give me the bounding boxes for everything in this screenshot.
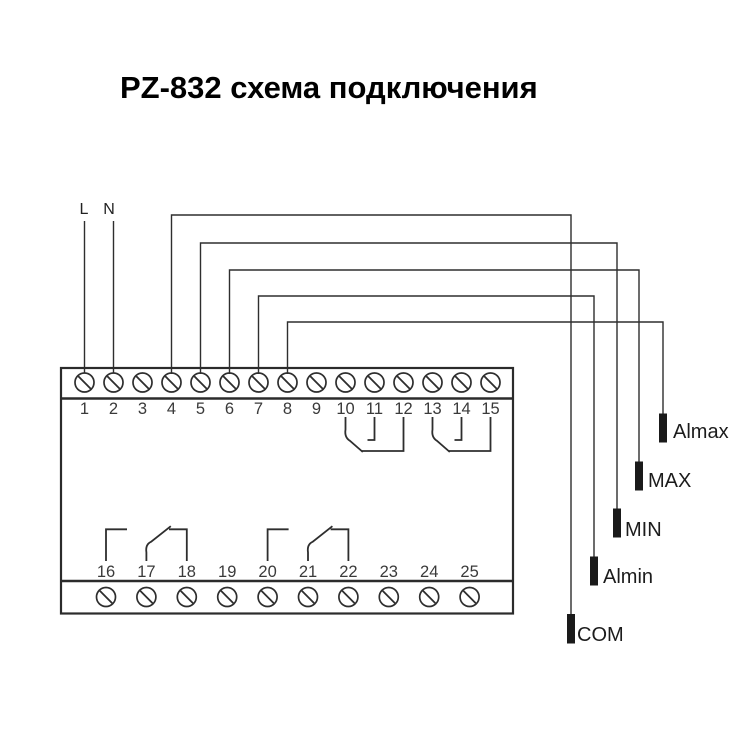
terminal-number: 25 — [460, 563, 478, 581]
terminal-number: 3 — [138, 400, 147, 418]
electrode-label: Almax — [673, 421, 729, 443]
bottom-terminal-numbers: 16 17 18 19 20 21 22 23 24 25 — [97, 563, 479, 581]
screw-icon — [336, 373, 355, 392]
relay-contacts — [106, 417, 491, 561]
contact-blade — [432, 417, 450, 452]
terminal-number: 14 — [452, 400, 470, 418]
screw-icon — [452, 373, 471, 392]
contact-fixed-arm — [362, 417, 404, 451]
screw-icon — [365, 373, 384, 392]
top-terminal-screws — [75, 373, 500, 392]
terminal-number: 22 — [339, 563, 357, 581]
contact-throw — [368, 417, 375, 440]
contact-fixed-arm — [449, 417, 491, 451]
wiring-diagram: PZ-832 схема подключения L N — [0, 0, 750, 750]
terminal-number: 15 — [481, 400, 499, 418]
terminal-number: 21 — [299, 563, 317, 581]
electrode-com: COM — [567, 614, 624, 646]
screw-icon — [104, 373, 123, 392]
terminal-number: 6 — [225, 400, 234, 418]
terminal-number: 2 — [109, 400, 118, 418]
contact-fixed-arm — [169, 529, 187, 561]
wire-terminal7-almin — [259, 296, 595, 557]
electrode-label: MIN — [625, 519, 662, 541]
screw-icon — [379, 588, 398, 607]
electrode-min: MIN — [613, 509, 662, 542]
screw-icon — [133, 373, 152, 392]
screw-icon — [75, 373, 94, 392]
screw-icon — [258, 588, 277, 607]
screw-icon — [249, 373, 268, 392]
line-label: L — [80, 201, 89, 218]
screw-icon — [394, 373, 413, 392]
terminal-number: 7 — [254, 400, 263, 418]
screw-icon — [460, 588, 479, 607]
electrode-rod-icon — [590, 557, 598, 586]
electrode-max: MAX — [635, 462, 691, 493]
terminal-number: 12 — [394, 400, 412, 418]
electrode-almax: Almax — [659, 414, 729, 444]
contact-throw — [106, 529, 127, 561]
screw-icon — [420, 588, 439, 607]
relay-contact-10-11-12 — [345, 417, 403, 452]
contact-throw — [455, 417, 462, 440]
terminal-number: 8 — [283, 400, 292, 418]
page-title: PZ-832 схема подключения — [120, 70, 538, 105]
top-terminal-numbers: 1 2 3 4 5 6 7 8 9 10 11 12 13 14 15 — [80, 400, 500, 418]
contact-blade — [146, 526, 171, 561]
relay-contact-13-14-15 — [432, 417, 490, 452]
electrode-almin: Almin — [590, 557, 653, 589]
terminal-number: 24 — [420, 563, 438, 581]
electrode-rod-icon — [659, 414, 667, 443]
terminal-number: 20 — [258, 563, 276, 581]
terminal-number: 18 — [178, 563, 196, 581]
wire-terminal6-max — [230, 270, 640, 462]
electrodes: Almax MAX MIN Almin COM — [567, 414, 729, 647]
electrode-label: Almin — [603, 566, 653, 588]
screw-icon — [299, 588, 318, 607]
terminal-number: 17 — [137, 563, 155, 581]
screw-icon — [481, 373, 500, 392]
terminal-number: 16 — [97, 563, 115, 581]
electrode-rod-icon — [635, 462, 643, 491]
screw-icon — [339, 588, 358, 607]
power-input: L N — [80, 201, 115, 374]
terminal-number: 9 — [312, 400, 321, 418]
screw-icon — [137, 588, 156, 607]
screw-icon — [278, 373, 297, 392]
screw-icon — [307, 373, 326, 392]
terminal-number: 19 — [218, 563, 236, 581]
screw-icon — [97, 588, 116, 607]
electrode-label: MAX — [648, 470, 691, 492]
terminal-number: 4 — [167, 400, 176, 418]
contact-fixed-arm — [331, 529, 349, 561]
contact-throw — [268, 529, 289, 561]
terminal-number: 13 — [423, 400, 441, 418]
terminal-number: 11 — [366, 400, 383, 418]
screw-icon — [423, 373, 442, 392]
electrode-rod-icon — [567, 614, 575, 644]
electrode-rod-icon — [613, 509, 621, 538]
diagram-page: PZ-832 схема подключения L N — [0, 0, 750, 750]
relay-contact-20-21-22 — [268, 526, 349, 561]
sensor-wires — [172, 215, 664, 614]
screw-icon — [177, 588, 196, 607]
contact-blade — [308, 526, 333, 561]
screw-icon — [220, 373, 239, 392]
terminal-number: 10 — [336, 400, 354, 418]
terminal-number: 5 — [196, 400, 205, 418]
terminal-number: 23 — [380, 563, 398, 581]
screw-icon — [218, 588, 237, 607]
terminal-number: 1 — [80, 400, 89, 418]
electrode-label: COM — [577, 624, 624, 646]
neutral-label: N — [103, 201, 115, 218]
contact-blade — [345, 417, 363, 452]
bottom-terminal-screws — [97, 588, 480, 607]
screw-icon — [191, 373, 210, 392]
screw-icon — [162, 373, 181, 392]
relay-contact-16-17-18 — [106, 526, 187, 561]
